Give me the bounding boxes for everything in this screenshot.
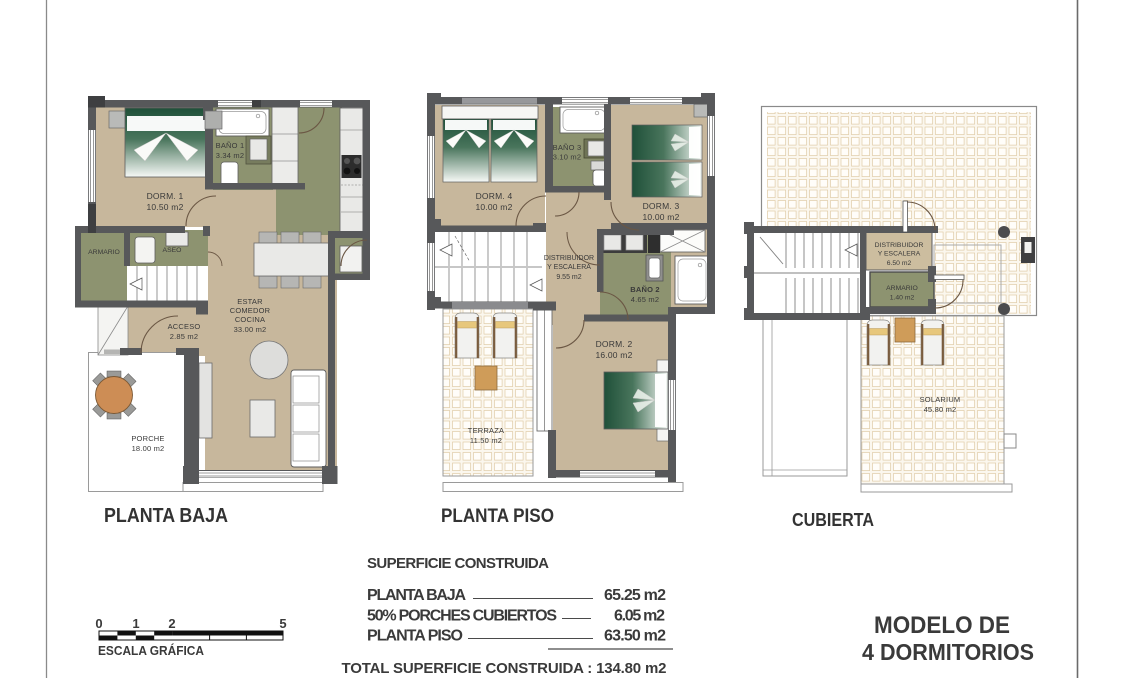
svg-text:ARMARIO: ARMARIO [88, 249, 120, 256]
svg-text:3.34 m2: 3.34 m2 [216, 151, 245, 160]
svg-text:9.55 m2: 9.55 m2 [556, 274, 581, 281]
svg-text:0: 0 [95, 616, 102, 631]
svg-text:33.00 m2: 33.00 m2 [234, 325, 267, 334]
svg-text:DORM. 4: DORM. 4 [476, 191, 513, 201]
svg-text:63.50 m2: 63.50 m2 [604, 628, 666, 645]
svg-text:ACCESO: ACCESO [168, 322, 201, 331]
svg-text:1: 1 [132, 616, 139, 631]
svg-text:COMEDOR: COMEDOR [230, 306, 271, 315]
svg-text:18.00 m2: 18.00 m2 [132, 444, 165, 453]
svg-text:COCINA: COCINA [235, 315, 265, 324]
svg-text:PLANTA BAJA: PLANTA BAJA [367, 587, 466, 604]
svg-text:SUPERFICIE CONSTRUIDA: SUPERFICIE CONSTRUIDA [367, 555, 549, 572]
svg-text:6.50 m2: 6.50 m2 [887, 260, 912, 267]
svg-text:DISTRIBUIDOR: DISTRIBUIDOR [544, 255, 594, 262]
svg-text:DORM. 3: DORM. 3 [643, 201, 680, 211]
svg-text:BAÑO 2: BAÑO 2 [630, 285, 660, 294]
svg-text:2: 2 [168, 616, 175, 631]
svg-text:ESCALA GRÁFICA: ESCALA GRÁFICA [98, 643, 205, 658]
svg-text:SOLARIUM: SOLARIUM [920, 395, 961, 404]
svg-text:MODELO DE: MODELO DE [874, 612, 1010, 639]
svg-text:CUBIERTA: CUBIERTA [792, 510, 874, 530]
svg-text:50% PORCHES CUBIERTOS: 50% PORCHES CUBIERTOS [367, 608, 557, 625]
svg-text:DISTRIBUIDOR: DISTRIBUIDOR [875, 242, 924, 249]
svg-text:Y ESCALERA: Y ESCALERA [878, 251, 921, 258]
svg-text:1.40 m2: 1.40 m2 [890, 295, 915, 302]
svg-text:16.00 m2: 16.00 m2 [595, 350, 632, 360]
svg-text:ESTAR: ESTAR [237, 297, 263, 306]
svg-text:2.85 m2: 2.85 m2 [170, 332, 199, 341]
svg-text:DORM. 2: DORM. 2 [596, 339, 633, 349]
svg-text:10.50 m2: 10.50 m2 [146, 202, 183, 212]
svg-text:ASEO: ASEO [163, 247, 182, 254]
svg-text:PLANTA PISO: PLANTA PISO [367, 628, 463, 645]
svg-text:ARMARIO: ARMARIO [886, 285, 918, 292]
svg-text:45.80 m2: 45.80 m2 [924, 405, 957, 414]
svg-text:5: 5 [279, 616, 286, 631]
svg-text:PORCHE: PORCHE [131, 434, 164, 443]
svg-text:11.50 m2: 11.50 m2 [470, 436, 502, 445]
svg-text:10.00 m2: 10.00 m2 [475, 202, 512, 212]
svg-text:TOTAL SUPERFICIE CONSTRUIDA :: TOTAL SUPERFICIE CONSTRUIDA : 134.80 m2 [342, 660, 667, 677]
svg-text:65.25 m2: 65.25 m2 [604, 587, 666, 604]
svg-text:TERRAZA: TERRAZA [468, 426, 504, 435]
svg-text:PLANTA BAJA: PLANTA BAJA [104, 505, 228, 527]
svg-text:4 DORMITORIOS: 4 DORMITORIOS [862, 639, 1034, 665]
svg-text:3.10 m2: 3.10 m2 [553, 153, 582, 162]
svg-text:6.05 m2: 6.05 m2 [614, 608, 665, 625]
svg-text:PLANTA PISO: PLANTA PISO [441, 506, 554, 527]
svg-text:Y ESCALERA: Y ESCALERA [547, 264, 591, 271]
svg-text:DORM. 1: DORM. 1 [147, 191, 184, 201]
svg-text:10.00 m2: 10.00 m2 [642, 212, 679, 222]
svg-text:BAÑO 3: BAÑO 3 [553, 143, 582, 152]
svg-text:BAÑO 1: BAÑO 1 [216, 141, 245, 150]
svg-text:4.65 m2: 4.65 m2 [631, 295, 660, 304]
